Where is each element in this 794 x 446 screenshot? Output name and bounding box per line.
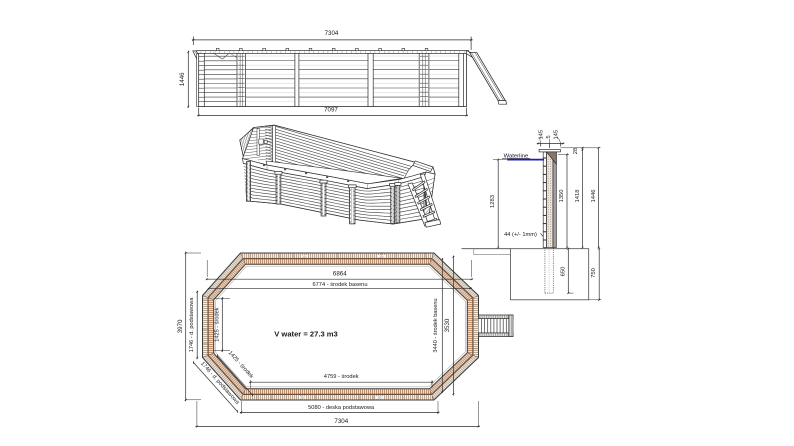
svg-text:5080 - deska podstawowa: 5080 - deska podstawowa <box>308 405 375 411</box>
svg-text:44 (+/- 1mm): 44 (+/- 1mm) <box>504 232 537 238</box>
svg-text:V water = 27.3 m3: V water = 27.3 m3 <box>274 330 338 339</box>
svg-text:6864: 6864 <box>333 271 347 278</box>
svg-text:145: 145 <box>539 130 545 140</box>
svg-text:200: 200 <box>300 396 305 400</box>
svg-text:1425 - środek: 1425 - środek <box>214 307 220 341</box>
svg-text:5: 5 <box>546 135 552 138</box>
svg-text:1446: 1446 <box>591 190 597 203</box>
svg-text:4759 - środek: 4759 - środek <box>324 374 359 380</box>
svg-text:3530: 3530 <box>444 318 451 332</box>
svg-text:7304: 7304 <box>334 418 348 425</box>
svg-text:200: 200 <box>379 254 384 258</box>
svg-text:28: 28 <box>573 148 579 154</box>
svg-text:3970: 3970 <box>177 319 184 333</box>
svg-text:1283: 1283 <box>490 195 496 208</box>
svg-text:6774 - środek basenu: 6774 - środek basenu <box>312 282 367 288</box>
svg-text:3440 - środek basenu: 3440 - środek basenu <box>433 298 439 352</box>
svg-text:1746 - d. podstawowa: 1746 - d. podstawowa <box>189 297 195 353</box>
svg-text:650: 650 <box>560 267 566 277</box>
svg-text:200: 200 <box>377 396 382 400</box>
svg-text:750: 750 <box>591 268 597 278</box>
svg-text:1350: 1350 <box>559 190 565 203</box>
svg-text:1418: 1418 <box>575 190 581 203</box>
svg-text:7304: 7304 <box>325 30 339 37</box>
svg-text:200: 200 <box>302 254 307 258</box>
svg-text:1446: 1446 <box>179 72 186 86</box>
svg-text:7097: 7097 <box>324 106 338 113</box>
